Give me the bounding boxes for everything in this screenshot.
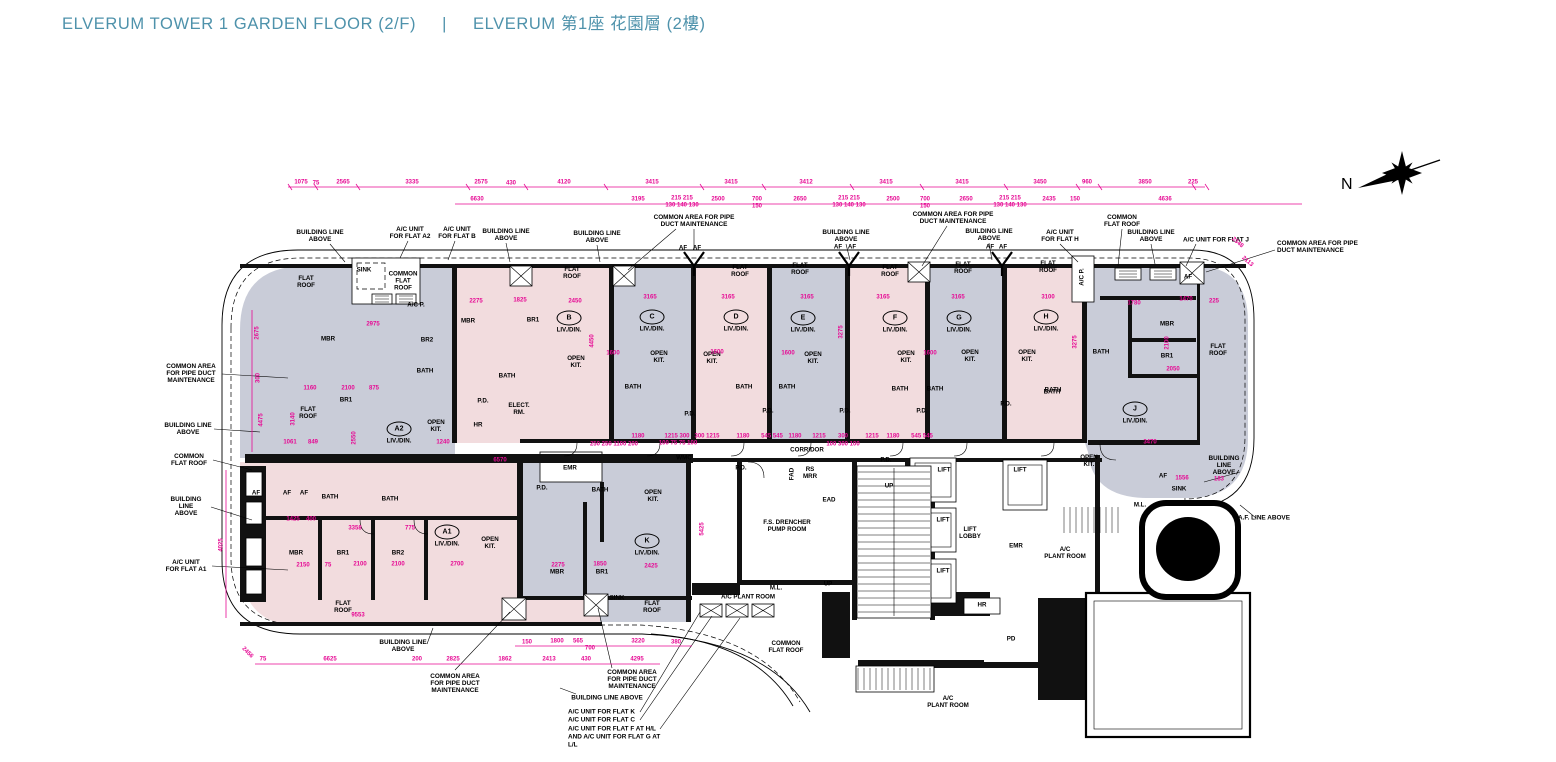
- dimension-label: 3165: [800, 295, 813, 302]
- room-label: BR1: [527, 318, 539, 325]
- room-label: BATH: [736, 385, 753, 392]
- dimension-label: 183: [1214, 477, 1224, 484]
- dimension-label: 1600: [710, 350, 723, 357]
- dimension-label: 775: [405, 526, 415, 533]
- room-label: FLAT ROOF: [643, 601, 661, 615]
- room-label: UP: [885, 484, 894, 491]
- room-label: OPEN KIT.: [804, 352, 822, 366]
- flat-circle: C: [640, 310, 665, 325]
- room-label: FLAT ROOF: [881, 265, 899, 279]
- room-label: OPEN KIT.: [1080, 455, 1098, 469]
- room-label: BATH: [1093, 350, 1110, 357]
- dimension-label: 4025: [219, 538, 226, 551]
- dimension-label: 700: [752, 197, 762, 204]
- dimension-label: 2100: [341, 386, 354, 393]
- room-label: FLAT ROOF: [731, 265, 749, 279]
- room-label: FLAT ROOF: [297, 276, 315, 290]
- room-label: AF: [834, 245, 842, 252]
- dimension-label: 3450: [1033, 180, 1046, 187]
- room-label: AF: [848, 245, 856, 252]
- room-label: MBR: [321, 337, 335, 344]
- room-label: P.D.: [839, 409, 850, 416]
- room-label: M.L.: [770, 586, 782, 593]
- annotation-label: BUILDING LINE ABOVE: [171, 496, 202, 518]
- living-dining-label: LIV./DIN.: [635, 550, 660, 557]
- dimension-label: 3275: [839, 325, 846, 338]
- title-english: ELVERUM TOWER 1 GARDEN FLOOR (2/F): [62, 15, 416, 34]
- dimension-label: 150: [1070, 197, 1080, 204]
- dimension-label: 2100: [1165, 336, 1172, 349]
- room-label: SINK: [610, 596, 625, 603]
- dimension-label: 1215: [865, 434, 878, 441]
- dimension-label: 2650: [793, 197, 806, 204]
- annotation-label: A/C UNIT FOR FLAT K: [568, 708, 635, 715]
- dimension-label: 3165: [643, 295, 656, 302]
- room-label: SINK: [357, 268, 372, 275]
- dimension-label: 3165: [876, 295, 889, 302]
- dimension-label: 4120: [557, 180, 570, 187]
- room-label: P.D.: [684, 412, 695, 419]
- room-label: BATH: [382, 497, 399, 504]
- dimension-label: 130 140 130: [993, 203, 1026, 210]
- room-label: P.D.: [477, 399, 488, 406]
- room-label: OPEN KIT.: [567, 356, 585, 370]
- room-label: RS MRR: [803, 467, 817, 481]
- dimension-label: 1180: [736, 434, 749, 441]
- room-label: A/C PLANT ROOM: [927, 696, 969, 710]
- dimension-label: 2825: [446, 657, 459, 664]
- annotation-label: BUILDING LINE ABOVE: [379, 639, 426, 653]
- room-label: F.S. DRENCHER PUMP ROOM: [763, 520, 810, 534]
- dimension-label: 1470: [1179, 297, 1192, 304]
- dimension-label: 6570: [493, 458, 506, 465]
- room-label: BATH: [592, 488, 609, 495]
- flat-circle: B: [557, 311, 582, 326]
- dimension-label: 4450: [590, 334, 597, 347]
- dimension-label: 1825: [513, 298, 526, 305]
- room-label: HR: [978, 603, 987, 610]
- flat-badge-a2: A2LIV./DIN.: [387, 422, 412, 445]
- dimension-label: 2150: [296, 563, 309, 570]
- dimension-label: 1180: [886, 434, 899, 441]
- dimension-label: 2675: [255, 326, 262, 339]
- dimension-label: 3412: [799, 180, 812, 187]
- room-label: OPEN KIT.: [650, 351, 668, 365]
- annotation-label: BUILDING LINE ABOVE: [822, 229, 869, 243]
- dimension-label: 215 215: [838, 196, 860, 203]
- dimension-label: 2550: [352, 431, 359, 444]
- compass-north-label: N: [1341, 176, 1353, 194]
- dimension-label: 150: [920, 204, 930, 211]
- dimension-label: 3140: [291, 412, 298, 425]
- dimension-label: 300 1215: [694, 434, 719, 441]
- annotation-label: BUILDING LINE ABOVE: [573, 230, 620, 244]
- annotation-label: A/C UNIT FOR FLAT B: [438, 226, 476, 240]
- room-label: FLAT ROOF: [334, 601, 352, 615]
- room-label: A/C PLANT ROOM: [1044, 547, 1086, 561]
- room-label: P.D.: [880, 458, 891, 465]
- annotation-label: A/C UNIT FOR FLAT H: [1041, 229, 1079, 243]
- annotation-label: COMMON FLAT ROOF: [1104, 214, 1140, 228]
- room-label: MBR: [550, 570, 564, 577]
- annotation-label: A/C UNIT FOR FLAT C: [568, 716, 635, 723]
- room-label: MBR: [461, 319, 475, 326]
- flat-badge-h: HLIV./DIN.: [1034, 310, 1059, 333]
- dimension-label: 1600: [923, 351, 936, 358]
- dimension-label: 1800: [550, 639, 563, 646]
- flat-badge-a1: A1LIV./DIN.: [435, 525, 460, 548]
- annotation-label: COMMON AREA FOR PIPE DUCT MAINTENANCE: [166, 363, 215, 385]
- dimension-label: 150: [522, 640, 532, 647]
- room-label: AF: [300, 491, 308, 498]
- floor-plan-label-layer: ELVERUM TOWER 1 GARDEN FLOOR (2/F) | ELV…: [0, 0, 1556, 762]
- annotation-label: A.F. LINE ABOVE: [1238, 514, 1290, 521]
- dimension-label: 1061: [283, 440, 296, 447]
- dimension-label: 2975: [366, 322, 379, 329]
- room-label: AF: [986, 245, 994, 252]
- dimension-label: 3470: [1143, 440, 1156, 447]
- dimension-label: 1556: [1175, 476, 1188, 483]
- flat-badge-b: BLIV./DIN.: [557, 311, 582, 334]
- dimension-label: 3335: [405, 180, 418, 187]
- flat-circle: A2: [387, 422, 412, 437]
- dimension-label: 300: [256, 373, 263, 383]
- dimension-label: 2100: [353, 562, 366, 569]
- dimension-label: 225: [1188, 180, 1198, 187]
- room-label: AF: [1184, 275, 1192, 282]
- flat-circle: K: [635, 534, 660, 549]
- dimension-label: 2050: [1166, 367, 1179, 374]
- dimension-label: 75: [313, 181, 320, 188]
- dimension-label: 545 545: [911, 434, 933, 441]
- room-label: BR2: [392, 551, 404, 558]
- room-label: BATH: [892, 387, 909, 394]
- dimension-label: 2113: [1240, 255, 1254, 269]
- room-label: BATH: [927, 387, 944, 394]
- room-label: P.D.: [916, 409, 927, 416]
- dimension-label: 3415: [724, 180, 737, 187]
- dimension-label: 565: [573, 639, 583, 646]
- dimension-label: 1780: [1127, 301, 1140, 308]
- flat-circle: A1: [435, 525, 460, 540]
- annotation-label: BUILDING LINE ABOVE: [1127, 229, 1174, 243]
- flat-circle: G: [947, 311, 972, 326]
- dimension-label: 3415: [955, 180, 968, 187]
- room-label: OPEN KIT.: [961, 350, 979, 364]
- dimension-label: 1180: [788, 434, 801, 441]
- dimension-label: 1180: [631, 434, 644, 441]
- dimension-label: 225: [1209, 299, 1219, 306]
- room-label: BATH: [499, 374, 516, 381]
- dimension-label: 215 215: [999, 196, 1021, 203]
- dimension-label: 250 250 1100 200: [590, 442, 638, 449]
- living-dining-label: LIV./DIN.: [1034, 326, 1059, 333]
- room-label: OPEN KIT.: [481, 537, 499, 551]
- dimension-label: 3850: [1138, 180, 1151, 187]
- annotation-label: BUILDING LINE ABOVE: [965, 228, 1012, 242]
- dimension-label: 2575: [474, 180, 487, 187]
- dimension-label: 2450: [568, 299, 581, 306]
- room-label: MBR: [289, 551, 303, 558]
- dimension-label: 1160: [303, 386, 316, 393]
- room-label: P.D.: [762, 409, 773, 416]
- annotation-label: COMMON AREA FOR PIPE DUCT MAINTENANCE: [430, 673, 479, 695]
- living-dining-label: LIV./DIN.: [883, 327, 908, 334]
- room-label: WMC: [676, 456, 691, 463]
- dimension-label: 3220: [631, 639, 644, 646]
- room-label: P.D.: [1000, 402, 1011, 409]
- room-label: OPEN KIT.: [1018, 350, 1036, 364]
- dimension-label: 3415: [879, 180, 892, 187]
- dimension-label: 300: [838, 434, 848, 441]
- room-label: HR: [474, 423, 483, 430]
- room-label: A/C PLANT ROOM: [721, 595, 775, 602]
- room-label: OPEN KIT.: [897, 351, 915, 365]
- dimension-label: 1240: [436, 440, 449, 447]
- dimension-label: 1215: [812, 434, 825, 441]
- room-label: LIFT: [936, 518, 949, 525]
- room-label: A/C P.: [407, 303, 424, 310]
- flat-badge-j: JLIV./DIN.: [1123, 402, 1148, 425]
- annotation-label: BUILDING LINE ABOVE: [571, 694, 642, 701]
- dimension-label: 545 545: [761, 434, 783, 441]
- dimension-label: 700: [585, 646, 595, 653]
- room-label: MBR: [1160, 322, 1174, 329]
- room-label: BR1: [340, 398, 352, 405]
- dimension-label: 849: [308, 440, 318, 447]
- room-label: ELECT. RM.: [508, 403, 529, 417]
- room-label: BR1: [1161, 354, 1173, 361]
- annotation-label: BUILDING LINE ABOVE: [482, 228, 529, 242]
- dimension-label: 215 215: [671, 196, 693, 203]
- room-label: BATH: [1044, 390, 1061, 397]
- flat-circle: D: [724, 310, 749, 325]
- dimension-label: 200: [412, 657, 422, 664]
- dimension-label: 2700: [450, 562, 463, 569]
- dimension-label: 2413: [542, 657, 555, 664]
- dimension-label: 875: [369, 386, 379, 393]
- dimension-label: 4475: [259, 413, 266, 426]
- dimension-label: 2650: [959, 197, 972, 204]
- dimension-label: 1215 300: [664, 434, 689, 441]
- room-label: AF: [679, 246, 687, 253]
- room-label: EMR: [563, 466, 577, 473]
- flat-badge-e: ELIV./DIN.: [791, 311, 816, 334]
- room-label: FAD: [790, 468, 797, 480]
- room-label: BATH: [779, 385, 796, 392]
- room-label: AF: [283, 491, 291, 498]
- dimension-label: 430: [581, 657, 591, 664]
- dimension-label: 1600: [781, 351, 794, 358]
- dimension-label: 3358: [348, 526, 361, 533]
- room-label: AF: [999, 245, 1007, 252]
- title-chinese: ELVERUM 第1座 花園層 (2樓): [473, 10, 706, 34]
- room-label: BR2: [421, 338, 433, 345]
- dimension-label: 2565: [336, 180, 349, 187]
- dimension-label: 6630: [470, 197, 483, 204]
- dimension-label: 150: [752, 204, 762, 211]
- flat-circle: J: [1123, 402, 1148, 417]
- room-label: SINK: [1172, 487, 1187, 494]
- room-label: BATH: [322, 495, 339, 502]
- room-label: FLAT ROOF: [954, 262, 972, 276]
- room-label: EAD: [822, 498, 835, 505]
- dimension-label: 960: [1082, 180, 1092, 187]
- dimension-label: 6625: [323, 657, 336, 664]
- annotation-label: COMMON AREA FOR PIPE DUCT MAINTENANCE: [1277, 240, 1358, 254]
- dimension-label: 2275: [551, 563, 564, 570]
- room-label: UP: [824, 582, 833, 589]
- dimension-label: 3165: [951, 295, 964, 302]
- annotation-label: A/C UNIT FOR FLAT A1: [166, 559, 207, 573]
- annotation-label: AND A/C UNIT FOR FLAT G AT: [568, 733, 660, 740]
- dimension-label: 4636: [1158, 197, 1171, 204]
- room-label: PD: [1007, 637, 1016, 644]
- dimension-label: 1862: [498, 657, 511, 664]
- annotation-label: A/C UNIT FOR FLAT A2: [390, 226, 431, 240]
- room-label: AF: [1159, 474, 1167, 481]
- dimension-label: 3195: [631, 197, 644, 204]
- flat-circle: E: [791, 311, 816, 326]
- dimension-label: 700: [920, 197, 930, 204]
- living-dining-label: LIV./DIN.: [724, 326, 749, 333]
- flat-badge-k: KLIV./DIN.: [635, 534, 660, 557]
- room-label: LIFT: [1013, 468, 1026, 475]
- living-dining-label: LIV./DIN.: [1123, 418, 1148, 425]
- annotation-label: BUILDING LINE ABOVE: [296, 229, 343, 243]
- room-label: LIFT: [936, 569, 949, 576]
- room-label: BR1: [596, 570, 608, 577]
- room-label: LIFT LOBBY: [959, 527, 981, 541]
- room-label: M.L.: [1134, 503, 1146, 510]
- annotation-label: BUILDING LINE ABOVE: [1209, 455, 1240, 477]
- flat-circle: F: [883, 311, 908, 326]
- living-dining-label: LIV./DIN.: [387, 438, 412, 445]
- page-title: ELVERUM TOWER 1 GARDEN FLOOR (2/F) | ELV…: [62, 10, 706, 34]
- annotation-label: BUILDING LINE ABOVE: [164, 422, 211, 436]
- room-label: FLAT ROOF: [299, 407, 317, 421]
- dimension-label: 3275: [1073, 335, 1080, 348]
- annotation-label: A/C UNIT FOR FLAT F AT H/L: [568, 725, 656, 732]
- flat-badge-d: DLIV./DIN.: [724, 310, 749, 333]
- room-label: BATH: [625, 385, 642, 392]
- dimension-label: 100 300 100: [826, 442, 859, 449]
- dimension-label: 3415: [645, 180, 658, 187]
- dimension-label: 9553: [351, 613, 364, 620]
- room-label: OPEN KIT.: [644, 490, 662, 504]
- room-label: COMMON FLAT ROOF: [389, 272, 418, 293]
- annotation-label: L/L: [568, 741, 578, 748]
- dimension-label: 1425: [286, 517, 299, 524]
- dimension-label: 2100: [391, 562, 404, 569]
- dimension-label: 3100: [1041, 295, 1054, 302]
- room-label: A/C P.: [1080, 268, 1087, 285]
- title-divider: |: [442, 15, 447, 34]
- dimension-label: 1600: [606, 351, 619, 358]
- dimension-label: 2275: [469, 299, 482, 306]
- room-label: BR1: [337, 551, 349, 558]
- flat-badge-c: CLIV./DIN.: [640, 310, 665, 333]
- dimension-label: 380: [671, 640, 681, 647]
- room-label: OPEN KIT.: [427, 420, 445, 434]
- living-dining-label: LIV./DIN.: [435, 541, 460, 548]
- dimension-label: 100 75 75 100: [659, 441, 697, 448]
- room-label: BATH: [417, 369, 434, 376]
- dimension-label: 2456: [240, 646, 254, 660]
- dimension-label: 75: [325, 563, 332, 570]
- dimension-label: 3165: [721, 295, 734, 302]
- dimension-label: 130 140 130: [665, 203, 698, 210]
- dimension-label: 430: [506, 181, 516, 188]
- living-dining-label: LIV./DIN.: [640, 326, 665, 333]
- room-label: AF: [693, 246, 701, 253]
- dimension-label: 130 140 130: [832, 203, 865, 210]
- annotation-label: COMMON FLAT ROOF: [171, 453, 207, 467]
- flat-badge-g: GLIV./DIN.: [947, 311, 972, 334]
- flat-badge-f: FLIV./DIN.: [883, 311, 908, 334]
- room-label: P.D.: [735, 466, 746, 473]
- dimension-label: 400: [306, 517, 316, 524]
- living-dining-label: LIV./DIN.: [791, 327, 816, 334]
- dimension-label: 1850: [593, 562, 606, 569]
- room-label: FLAT ROOF: [791, 263, 809, 277]
- living-dining-label: LIV./DIN.: [557, 327, 582, 334]
- annotation-label: COMMON AREA FOR PIPE DUCT MAINTENANCE: [607, 669, 656, 691]
- room-label: LIFT: [937, 468, 950, 475]
- dimension-label: 5425: [700, 522, 707, 535]
- room-label: AF: [252, 491, 260, 498]
- dimension-label: 2500: [886, 197, 899, 204]
- room-label: FLAT ROOF: [1039, 261, 1057, 275]
- room-label: FLAT ROOF: [563, 267, 581, 281]
- room-label: P.D.: [536, 486, 547, 493]
- room-label: CORRIDOR: [790, 448, 824, 455]
- flat-circle: H: [1034, 310, 1059, 325]
- dimension-label: 75: [260, 657, 267, 664]
- room-label: EMR: [1009, 544, 1023, 551]
- living-dining-label: LIV./DIN.: [947, 327, 972, 334]
- annotation-label: COMMON AREA FOR PIPE DUCT MAINTENANCE: [913, 211, 994, 225]
- room-label: FLAT ROOF: [1209, 344, 1227, 358]
- dimension-label: 2425: [644, 564, 657, 571]
- dimension-label: 1075: [294, 180, 307, 187]
- annotation-label: COMMON AREA FOR PIPE DUCT MAINTENANCE: [654, 214, 735, 228]
- dimension-label: 4295: [630, 657, 643, 664]
- dimension-label: 2435: [1042, 197, 1055, 204]
- dimension-label: 2500: [711, 197, 724, 204]
- room-label: COMMON FLAT ROOF: [769, 641, 804, 655]
